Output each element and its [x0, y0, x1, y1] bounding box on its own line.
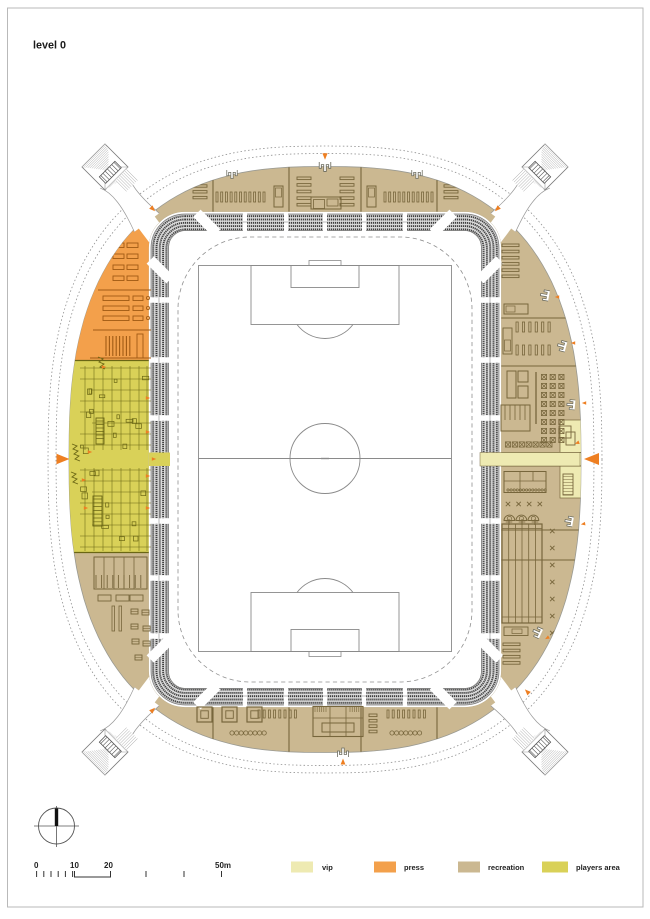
svg-text:recreation: recreation [488, 863, 525, 872]
svg-text:20: 20 [104, 861, 113, 870]
svg-text:vip: vip [322, 863, 333, 872]
svg-text:press: press [404, 863, 424, 872]
svg-text:10: 10 [70, 861, 79, 870]
svg-text:50m: 50m [215, 861, 231, 870]
svg-text:level 0: level 0 [33, 40, 66, 52]
svg-text:players area: players area [576, 863, 621, 872]
svg-text:0: 0 [34, 861, 39, 870]
